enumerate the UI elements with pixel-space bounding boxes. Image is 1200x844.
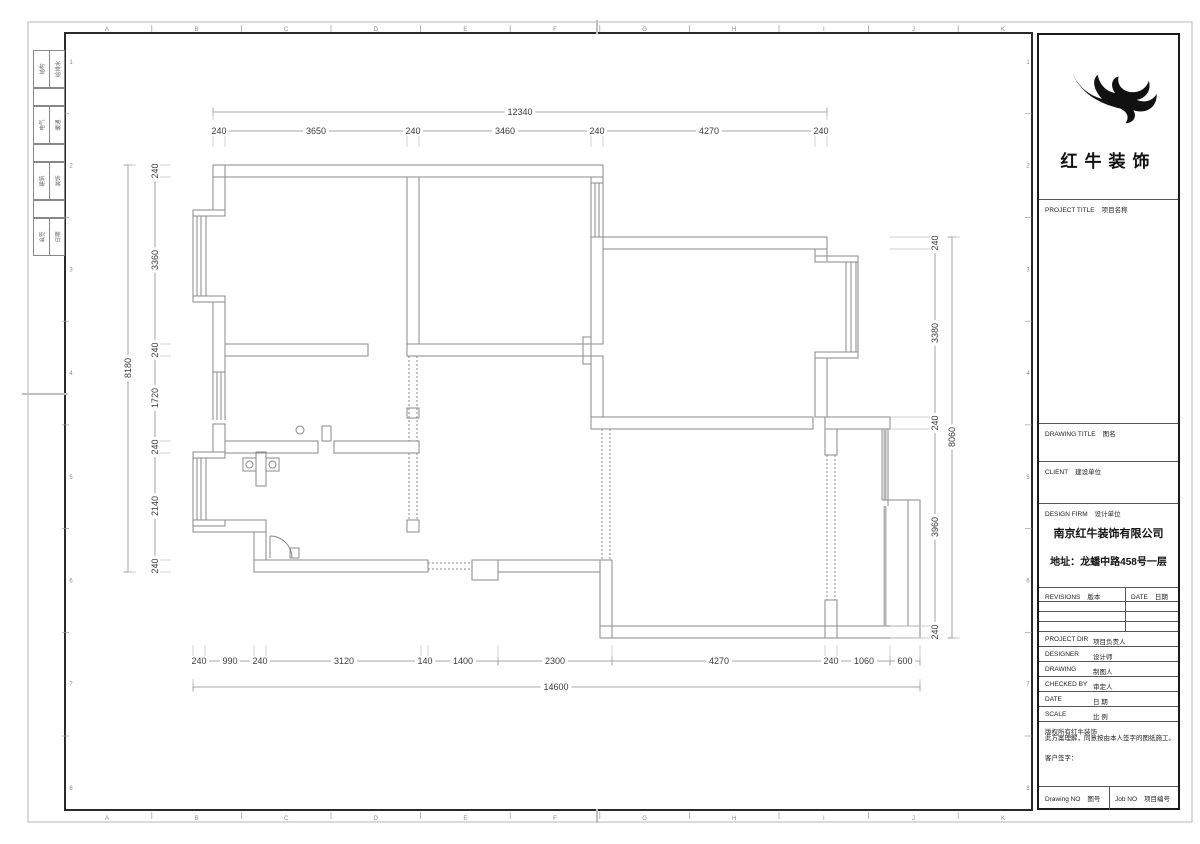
grid-number-right: 3 [1026,267,1030,273]
door-swing-bottomleft [270,536,299,558]
wall-midlow-a [225,441,318,453]
dim-row-bottom-overall: 14600 [193,679,920,692]
dimension-layer: 1234024036502403460240427024081802403360… [123,107,960,692]
dim-label: 3380 [930,323,940,343]
section-client: CLIENT建设单位 [1045,466,1101,476]
appliance-symbols [243,452,279,486]
dim-label: 240 [150,439,160,454]
grid-letter-bottom: F [553,816,557,822]
signature-box-empty [33,144,65,162]
dim-label: 240 [191,656,206,666]
signature-cell: 暖通 [50,107,66,143]
signature-cell: 装饰 [50,163,66,199]
balcony-partition-top [825,429,837,455]
drawing-sheet: 1234024036502403460240427024081802403360… [0,0,1200,844]
divider [1039,691,1178,692]
title-block: 红牛装饰 PROJECT TITLE项目名称 DRAWING TITLE图名 C… [1037,33,1180,810]
grid-letter-bottom: G [642,816,647,822]
signature-box: 结构给排水 [33,50,65,88]
wall-midroom-lowest [591,356,603,417]
divider [1039,503,1178,504]
dim-label: 1060 [854,656,874,666]
dim-label: 3650 [306,126,326,136]
grid-number-right: 7 [1026,682,1030,688]
door-leaf-mid [322,426,331,441]
grid-letter-bottom: E [463,816,467,822]
label-zh: 比 例 [1093,711,1108,721]
dim-label: 240 [930,235,940,250]
label-zh: 版本 [1087,594,1100,601]
dim-label: 3460 [495,126,515,136]
grid-reference-layer: AABBCCDDEEFFGGHHIIJJKK1122334455667788 [62,25,1032,822]
dim-label: 14600 [543,682,568,692]
dim-label: 240 [813,126,828,136]
dim-label: 1720 [150,388,160,408]
dim-row-top-segments: 240365024034602404270240 [209,126,831,147]
label-zh: 图号 [1087,796,1100,803]
wall-left-mid [213,302,225,372]
company-address: 地址：龙蟠中路458号一层 [1039,553,1178,568]
dim-label: 240 [589,126,604,136]
company-name: 南京红牛装饰有限公司 [1039,525,1178,541]
signature-cell: 结构 [34,51,50,87]
dim-label: 4270 [709,656,729,666]
client-signature-label: 客户签字： [1045,752,1078,762]
grid-letter-top: F [553,27,557,33]
section-drawing-title: DRAWING TITLE图名 [1045,428,1116,438]
dim-label: 3360 [150,250,160,270]
dim-label: 240 [823,656,838,666]
label-en: DRAWING [1045,666,1076,673]
grid-number-right: 8 [1026,786,1030,792]
label-en: REVISIONS [1045,594,1080,601]
dim-label: 240 [930,624,940,639]
signature-box: 建筑装饰 [33,162,65,200]
field-project-dir: PROJECT DIR项目负责人 [1045,636,1088,643]
wall-midroom-stub [591,177,603,183]
grid-letter-bottom: H [732,816,736,822]
revision-row-line [1039,631,1178,632]
grid-letter-bottom: J [912,816,915,822]
fixture-circle [296,426,304,434]
bay-window-lower-left [193,452,225,526]
label-en: PROJECT DIR [1045,636,1088,643]
label-en: SCALE [1045,711,1066,718]
signature-box-empty [33,88,65,106]
grid-letter-top: K [1001,27,1005,33]
balcony-partition-bottom [825,600,837,638]
label-en: DATE [1131,594,1148,601]
dim-row-top-overall: 12340 [213,107,827,120]
grid-letter-bottom: B [195,816,199,822]
wall-left-lower [213,424,225,452]
bay-window-upper-left [193,210,225,302]
label-zh: 日 期 [1093,696,1108,706]
grid-number-right: 5 [1026,475,1030,481]
section-project-title: PROJECT TITLE项目名称 [1045,204,1128,214]
dim-label: 240 [150,342,160,357]
drawing-no-label: Drawing NO图号 [1045,793,1100,803]
label-zh: 图名 [1103,431,1116,438]
floor-plan [193,165,920,638]
dim-label: 2140 [150,496,160,516]
grid-number-left: 7 [69,682,73,688]
flue-notch [583,337,591,364]
dim-label: 600 [897,656,912,666]
dim-label: 1400 [453,656,473,666]
divider [1039,423,1178,424]
grid-letter-top: B [195,27,199,33]
grid-letter-top: G [642,27,647,33]
bottom-divider [1109,786,1110,810]
partition-top-rooms [407,177,419,344]
label-zh: 建设单位 [1075,469,1101,476]
field-designer: DESIGNER设计师 [1045,651,1079,658]
grid-letter-bottom: C [284,816,289,822]
signature-cell: 日期 [50,219,66,255]
signature-strip: 结构给排水电气暖通建筑装饰会签日期 [33,50,65,256]
revision-row-line [1039,621,1178,622]
signature-cell: 建筑 [34,163,50,199]
revisions-header: REVISIONS版本 [1045,591,1100,601]
label-en: Job NO [1115,796,1137,803]
wall-top [213,165,603,177]
signature-box: 电气暖通 [33,106,65,144]
wall-balcony-outer [908,500,920,626]
signature-box-empty [33,200,65,218]
wall-midlow-b [334,441,419,453]
dim-label: 240 [930,415,940,430]
divider [1039,661,1178,662]
divider [1039,721,1178,722]
dim-label: 2300 [545,656,565,666]
revisions-date-header: DATE日期 [1131,591,1168,601]
wall-left-upper [213,165,225,210]
grid-number-left: 6 [69,579,73,585]
grid-letter-bottom: D [374,816,379,822]
grid-number-right: 4 [1026,371,1030,377]
field-checked-by: CHECKED BY审定人 [1045,681,1087,688]
wall-bottomleft-b [254,532,266,560]
revision-row-line [1039,611,1178,612]
label-zh: 日期 [1155,594,1168,601]
dim-label: 12340 [507,107,532,117]
divider [1039,199,1178,200]
wall-rightband-b [825,417,890,429]
window-left-wall [213,372,225,420]
grid-number-right: 1 [1026,60,1030,66]
partition-stub2 [407,520,419,532]
dim-row-right-overall: 8060 [947,237,960,638]
divider [1039,706,1178,707]
dim-label: 140 [417,656,432,666]
signature-box: 会签日期 [33,218,65,256]
grid-number-left: 2 [69,164,73,170]
grid-letter-top: C [284,27,289,33]
signature-cell: 会签 [34,219,50,255]
dim-label: 240 [211,126,226,136]
divider [1039,646,1178,647]
job-no-label: Job NO项目编号 [1115,793,1170,803]
grid-letter-top: D [374,27,379,33]
grid-number-right: 6 [1026,579,1030,585]
grid-letter-top: E [463,27,467,33]
dim-label: 8180 [123,358,133,378]
dim-label: 990 [222,656,237,666]
grid-letter-bottom: K [1001,816,1005,822]
dim-label: 4270 [699,126,719,136]
wall-entry-a [254,560,428,572]
grid-letter-bottom: I [823,816,825,822]
label-zh: 审定人 [1093,681,1113,691]
wall-entry-b [498,560,600,572]
label-zh: 设计师 [1093,651,1113,661]
dim-row-bottom-segments: 24099024031201401400230042702401060600 [189,645,920,666]
window-midroom [591,183,603,237]
divider [1039,461,1178,462]
grid-number-right: 2 [1026,164,1030,170]
label-en: Drawing NO [1045,796,1080,803]
entry-step [472,560,498,580]
wall-bottom [600,626,920,638]
grid-number-left: 8 [69,786,73,792]
label-zh: 设计单位 [1095,511,1121,518]
wall-right-mid [815,358,827,417]
grid-letter-top: H [732,27,736,33]
dim-label: 3960 [930,517,940,537]
field-scale: SCALE比 例 [1045,711,1066,718]
sheet-borders [22,20,1192,823]
dim-label: 240 [150,558,160,573]
wall-topright-top [603,237,827,249]
grid-number-left: 5 [69,475,73,481]
label-en: PROJECT TITLE [1045,207,1095,214]
wall-mid-left [225,344,368,356]
drawing-frame [65,33,1032,810]
dim-row-right-segments: 24033802403960240 [890,233,940,642]
grid-letter-top: J [912,27,915,33]
label-en: DATE [1045,696,1062,703]
disclaimer-line2: 此方案理解，同意按由本人签字的图纸施工。 [1045,735,1175,743]
grid-letter-bottom: A [105,816,109,822]
wall-midroom-lower [591,237,603,344]
divider [1039,587,1178,588]
label-en: DRAWING TITLE [1045,431,1096,438]
bay-window-right [815,256,858,358]
dim-label: 240 [405,126,420,136]
label-zh: 项目编号 [1144,796,1170,803]
field-date: DATE日 期 [1045,696,1062,703]
signature-cell: 给排水 [50,51,66,87]
paper-edge [28,22,1192,822]
dim-row-left-segments: 240336024017202402140240 [150,161,171,576]
revision-row-line [1039,601,1178,602]
signature-cell: 电气 [34,107,50,143]
logo-text: 红牛装饰 [1039,147,1178,172]
label-en: CLIENT [1045,469,1068,476]
wall-mid-right [407,344,591,356]
dim-label: 8060 [947,427,957,447]
dim-label: 240 [252,656,267,666]
grid-number-left: 3 [69,267,73,273]
label-zh: 制图人 [1093,666,1113,676]
wall-rightband-a [591,417,813,429]
dim-row-left-overall: 8180 [123,165,136,572]
dim-label: 240 [150,163,160,178]
label-zh: 项目负责人 [1093,636,1126,646]
grid-number-left: 1 [69,60,73,66]
label-en: DESIGN FIRM [1045,511,1088,518]
floor-plan-canvas: 1234024036502403460240427024081802403360… [0,0,1200,844]
grid-number-left: 4 [69,371,73,377]
label-en: CHECKED BY [1045,681,1087,688]
revisions-divider [1125,587,1126,631]
dim-label: 3120 [334,656,354,666]
divider [1039,676,1178,677]
label-zh: 项目名称 [1102,207,1128,214]
rednote-bull-logo-icon [1057,65,1161,133]
label-en: DESIGNER [1045,651,1079,658]
field-drawing: DRAWING制图人 [1045,666,1076,673]
section-design-firm: DESIGN FIRM设计单位 [1045,508,1121,518]
grid-letter-top: A [105,27,109,33]
